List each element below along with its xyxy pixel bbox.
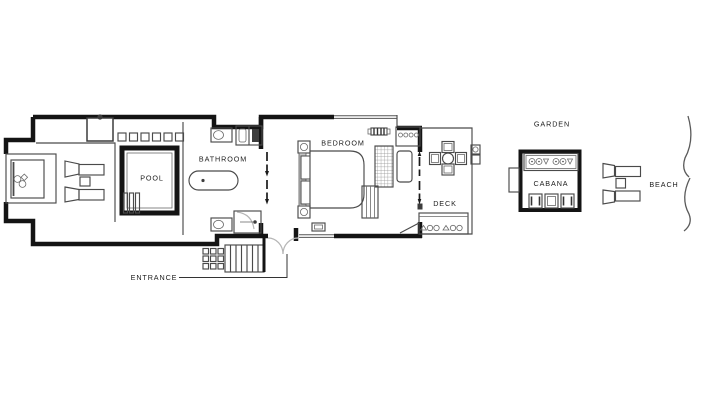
dining-table (430, 142, 467, 176)
floor-plan-drawing: POOL BATHROOM BEDROOM DECK GARDEN CABANA… (0, 0, 704, 420)
bed (298, 141, 364, 218)
door-leaf (400, 223, 419, 233)
mattress (310, 151, 364, 208)
cabana-label: CABANA (534, 179, 569, 188)
bathroom-label: BATHROOM (199, 155, 247, 164)
pillow (301, 156, 310, 179)
shower (234, 211, 261, 233)
side-table (80, 177, 90, 186)
sliding-door-deck (418, 151, 422, 205)
shower-head-dot (97, 114, 102, 119)
entrance-label: ENTRANCE (131, 273, 178, 282)
terrace-edge-line (36, 143, 115, 222)
bathroom (183, 122, 262, 235)
stepping-stones (203, 249, 224, 270)
sliding-door-bathroom (265, 152, 269, 205)
toilet (211, 128, 232, 142)
bathtub (189, 171, 238, 190)
side-table (616, 179, 626, 189)
outdoor-shower (87, 114, 113, 141)
wardrobe (375, 146, 393, 187)
sun-lounger (65, 187, 104, 202)
low-table (312, 223, 325, 231)
beach-loungers (603, 164, 641, 205)
cabana-step (509, 168, 519, 192)
door-stop (418, 204, 423, 210)
dresser (397, 151, 412, 182)
pool-label: POOL (140, 174, 164, 183)
deck-label: DECK (433, 199, 457, 208)
entrance-stairs (225, 238, 264, 272)
exterior-walls (6, 115, 423, 244)
deck-steps (419, 213, 468, 234)
daybed (6, 154, 56, 203)
entrance-leader-line (179, 254, 287, 278)
entrance-door-arcs (268, 238, 298, 254)
garden-label: GARDEN (534, 120, 570, 129)
nightstand (298, 206, 310, 218)
floor-plan: POOL BATHROOM BEDROOM DECK GARDEN CABANA… (0, 0, 704, 420)
nightstand (298, 141, 310, 153)
deck (419, 128, 480, 234)
bedroom-label: BEDROOM (321, 139, 364, 148)
ac-vent (368, 128, 390, 135)
cushion-row (118, 133, 184, 141)
toilet (211, 218, 232, 231)
pillow (301, 181, 310, 204)
sun-lounger (65, 161, 104, 177)
shoreline-waves (684, 116, 691, 231)
beach-label: BEACH (649, 180, 678, 189)
